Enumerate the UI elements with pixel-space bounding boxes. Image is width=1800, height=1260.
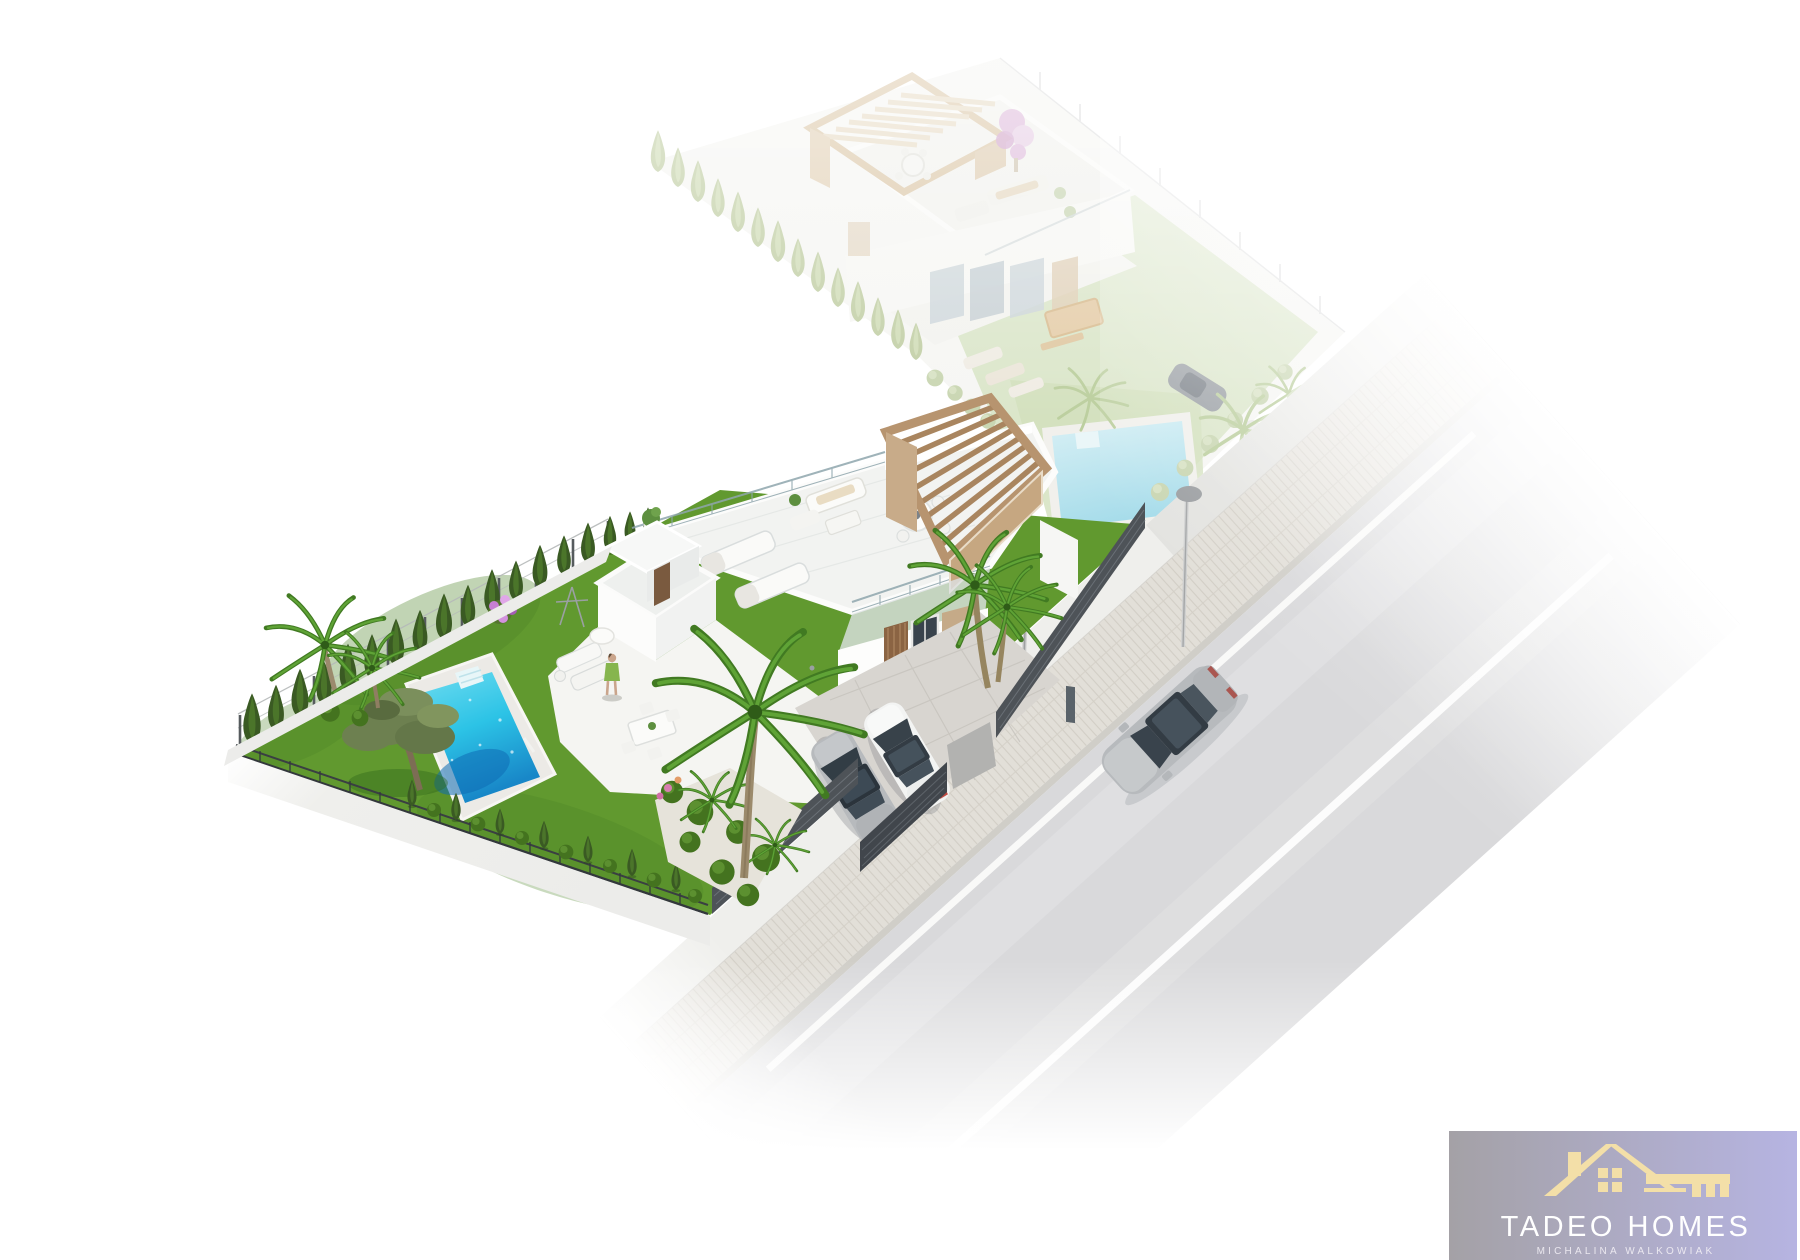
render-canvas: TADEO HOMES MICHALINA WALKOWIAK	[0, 0, 1800, 1260]
parasol	[590, 628, 614, 644]
brand-name: TADEO HOMES	[1501, 1211, 1752, 1243]
watermark-logo: TADEO HOMES MICHALINA WALKOWIAK	[1449, 1131, 1797, 1260]
fade-top-right	[1100, 0, 1800, 840]
brand-subtitle: MICHALINA WALKOWIAK	[1537, 1246, 1716, 1257]
scene-svg: TADEO HOMES MICHALINA WALKOWIAK	[0, 0, 1800, 1260]
